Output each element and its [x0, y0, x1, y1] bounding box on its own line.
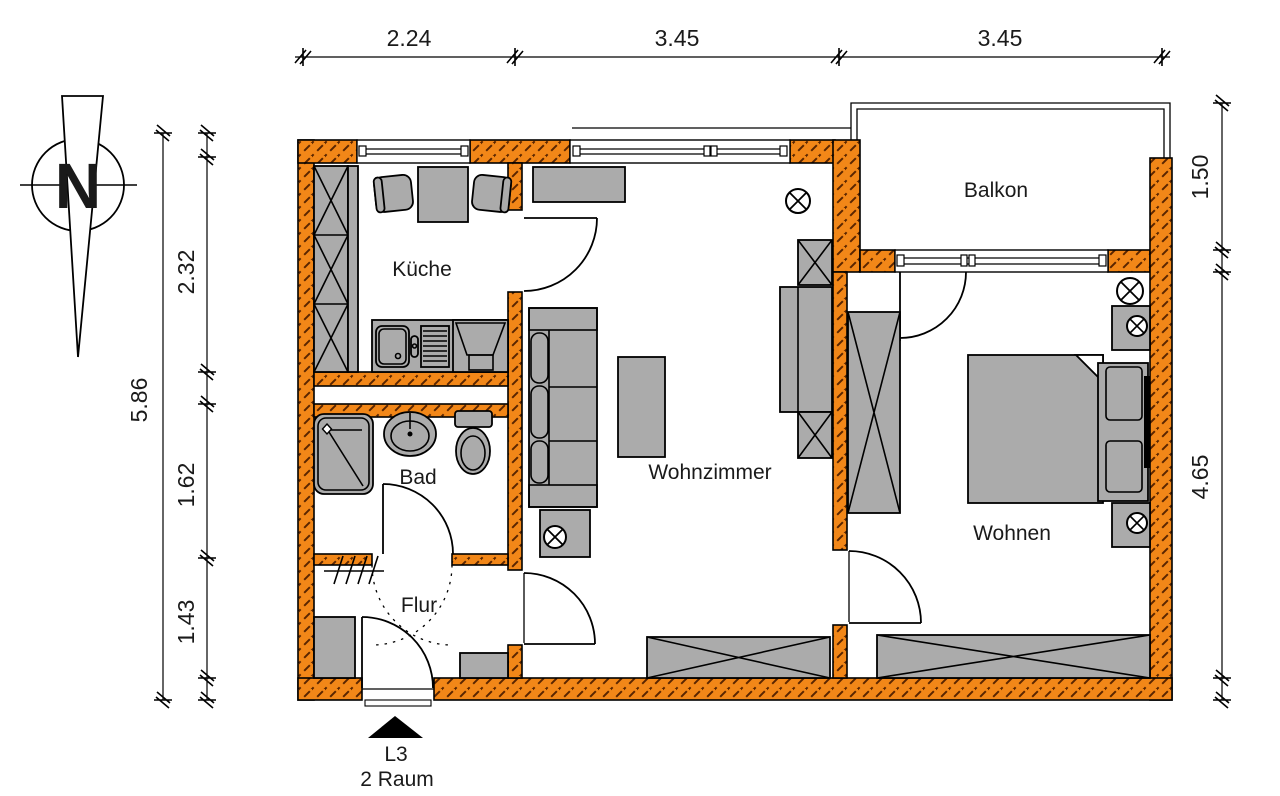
kitchen-chair-left	[373, 174, 413, 213]
kitchen-tall-cabinet	[314, 166, 358, 372]
bedroom-wardrobe	[848, 312, 900, 513]
wall-exterior-bottom-a	[298, 678, 362, 700]
wall-exterior-left	[298, 140, 314, 700]
balcony-label: Balkon	[964, 179, 1028, 202]
kitchen-window	[357, 140, 470, 163]
balcony-window	[895, 250, 1108, 272]
hall-cabinet-right	[460, 653, 508, 678]
dim-left-total: 5.86	[126, 378, 152, 423]
kitchen-label: Küche	[392, 258, 452, 281]
wall-column-corridor-c	[508, 645, 522, 678]
wall-balcony-left-stub	[833, 140, 860, 272]
double-bed	[968, 355, 1148, 503]
kitchen-chair-right	[471, 174, 511, 213]
kitchen-stove	[453, 320, 508, 372]
radiator	[1144, 376, 1150, 468]
bedroom-label: Wohnen	[973, 522, 1051, 545]
kitchen-table	[418, 167, 468, 222]
kitchen-counter	[372, 320, 508, 372]
wall-bedroom-top-right	[1108, 250, 1150, 272]
table-lamp-icon	[544, 526, 566, 548]
wall-exterior-right	[1150, 158, 1172, 700]
wall-bath-bottom-a	[314, 554, 372, 565]
bedroom-ceiling-lamp-icon	[1117, 278, 1143, 304]
wall-kitchen-bottom	[314, 372, 508, 386]
wall-exterior-bottom-b	[434, 678, 1172, 700]
bedroom-sideboard-bottom	[877, 635, 1150, 678]
bathroom-label: Bad	[399, 466, 436, 489]
sofa	[529, 308, 597, 507]
wall-living-bedroom-upper	[833, 272, 847, 550]
washbasin	[384, 412, 436, 456]
kitchen-drainer	[421, 326, 449, 367]
dim-right-2: 4.65	[1187, 455, 1213, 500]
floor-plan-canvas: N Balkon	[0, 0, 1280, 796]
north-letter: N	[55, 150, 101, 222]
wall-exterior-top-a	[298, 140, 357, 163]
toilet	[455, 411, 492, 474]
dim-top-2: 3.45	[655, 25, 700, 51]
wall-column-corridor-b	[508, 292, 522, 570]
wall-exterior-top-c	[790, 140, 835, 163]
dim-right-1: 1.50	[1187, 155, 1213, 200]
wall-bedroom-top-left	[860, 250, 895, 272]
hall-cabinet-left	[314, 617, 355, 678]
entrance-position-label: L3	[384, 743, 407, 766]
living-sideboard-bottom	[647, 637, 830, 678]
coffee-table	[618, 357, 665, 457]
dim-left-1: 2.32	[173, 250, 199, 295]
dim-left-2: 1.62	[173, 463, 199, 508]
shower	[314, 414, 373, 494]
entrance-type-label: 2 Raum	[360, 768, 434, 791]
wall-exterior-top-b	[470, 140, 570, 163]
living-sideboard-top	[533, 167, 625, 202]
nightstand-lamp-icon	[1127, 513, 1147, 533]
living-room-window	[570, 140, 790, 163]
floor-plan-page: N Balkon	[0, 0, 1280, 796]
living-label: Wohnzimmer	[648, 461, 771, 484]
hallway-label: Flur	[401, 594, 437, 617]
dim-left-3: 1.43	[173, 600, 199, 645]
living-ceiling-lamp-icon	[786, 189, 810, 213]
wall-living-bedroom-lower	[833, 625, 847, 678]
nightstand-lamp-icon	[1127, 316, 1147, 336]
nightstand-top	[1112, 306, 1150, 350]
entrance-threshold	[365, 700, 431, 706]
side-table-with-lamp	[540, 510, 590, 557]
nightstand-bottom	[1112, 503, 1150, 547]
wall-bath-bottom-b	[452, 554, 508, 565]
dim-top-3: 3.45	[978, 25, 1023, 51]
dim-top-1: 2.24	[387, 25, 432, 51]
